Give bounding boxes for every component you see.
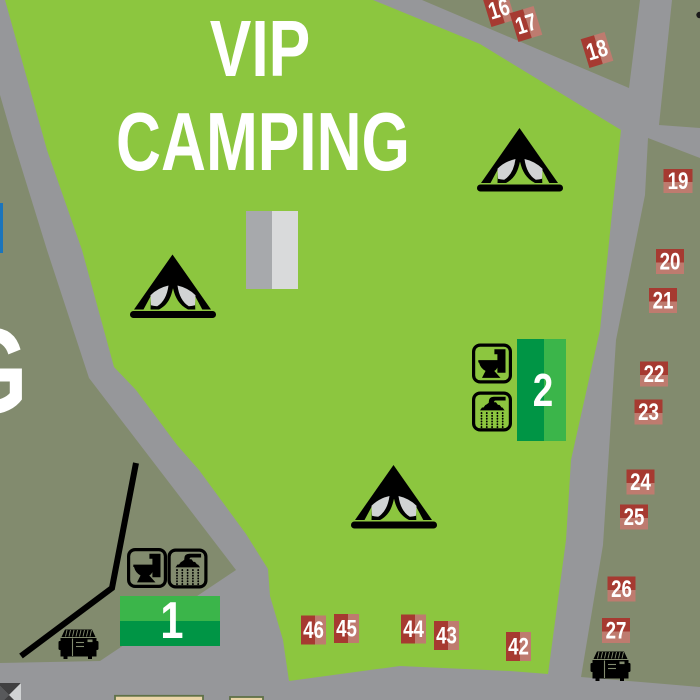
svg-text:VIP: VIP xyxy=(210,5,311,94)
svg-text:42: 42 xyxy=(508,633,529,660)
svg-text:G: G xyxy=(0,302,28,439)
svg-text:25: 25 xyxy=(624,504,645,531)
svg-text:CAMPING: CAMPING xyxy=(116,95,410,188)
svg-text:2: 2 xyxy=(533,364,553,416)
svg-text:20: 20 xyxy=(660,248,681,275)
svg-text:43: 43 xyxy=(436,622,457,649)
svg-text:22: 22 xyxy=(644,361,665,388)
svg-text:46: 46 xyxy=(303,617,324,644)
svg-text:27: 27 xyxy=(606,617,627,644)
svg-text:1: 1 xyxy=(160,591,183,650)
svg-text:44: 44 xyxy=(403,616,424,643)
svg-text:21: 21 xyxy=(653,287,674,314)
svg-text:19: 19 xyxy=(668,168,689,195)
svg-text:23: 23 xyxy=(638,399,659,426)
svg-text:26: 26 xyxy=(611,576,632,603)
svg-text:45: 45 xyxy=(336,615,357,642)
svg-text:24: 24 xyxy=(630,469,651,496)
